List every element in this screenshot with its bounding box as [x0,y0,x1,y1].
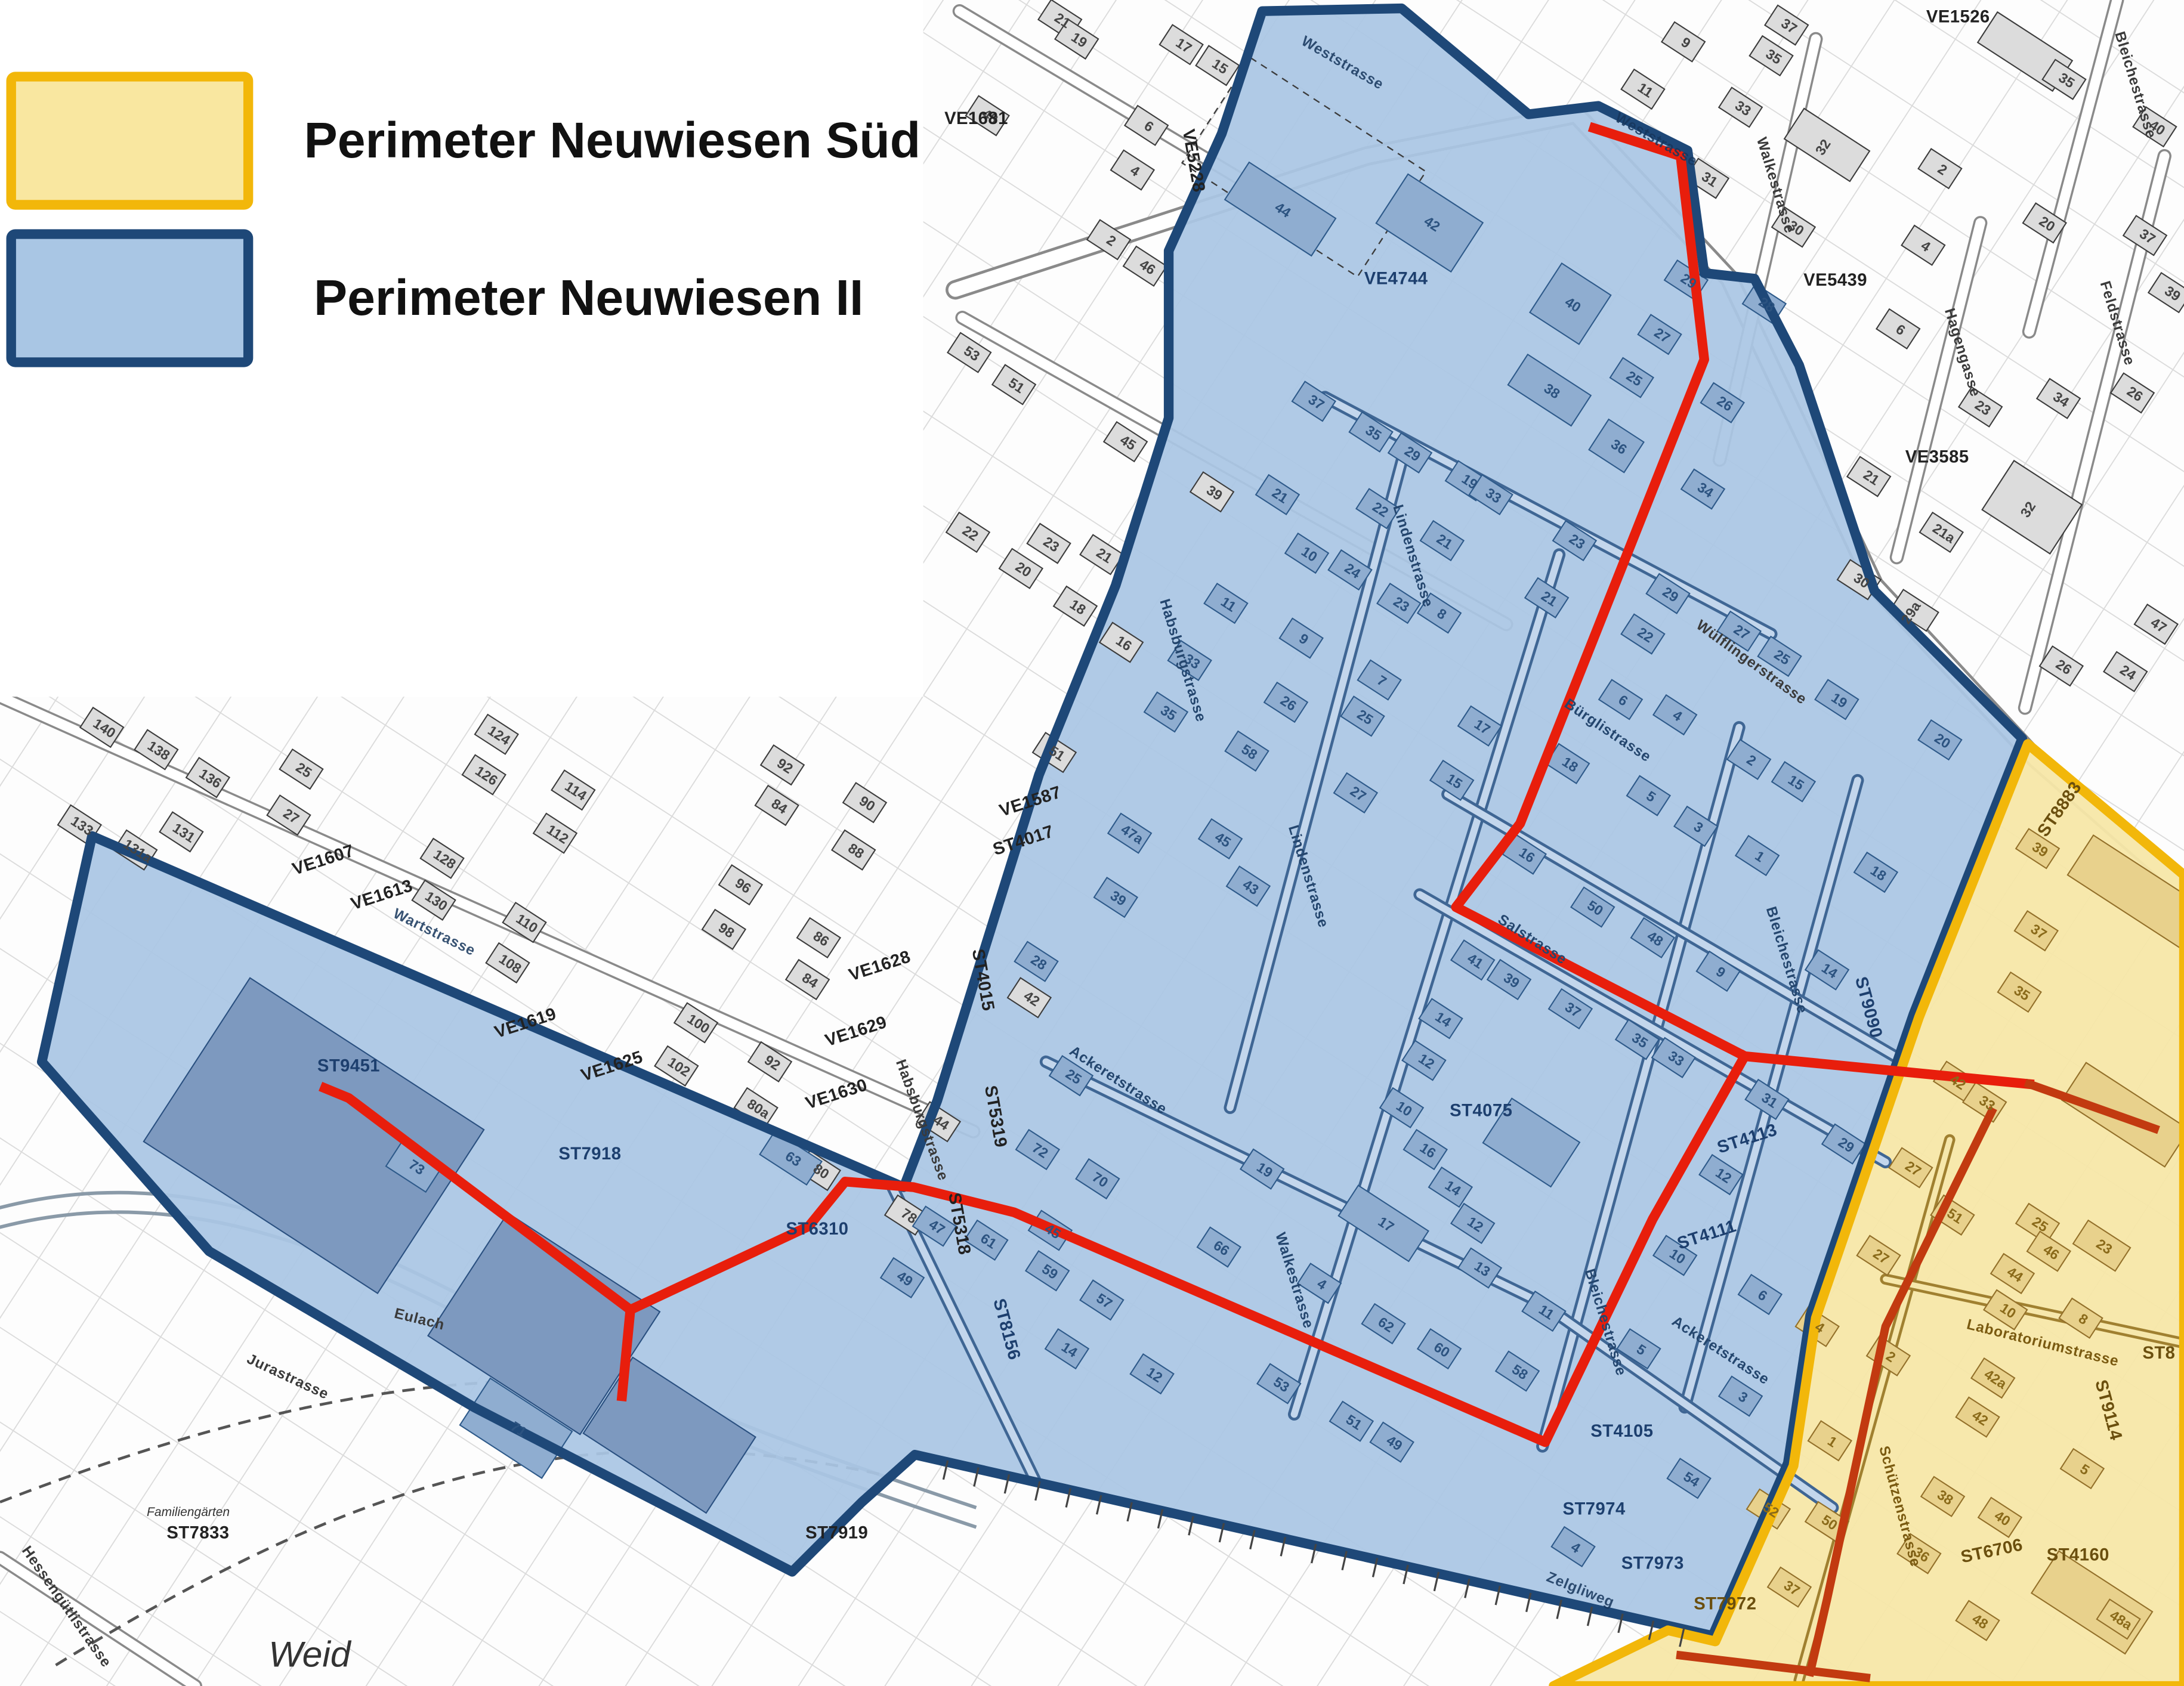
parcel-id-label: ST4075 [1450,1101,1512,1120]
parcel-id-label: ST4105 [1590,1422,1653,1441]
parcel-id-label: VE4744 [1364,270,1428,289]
parcel-id-label: ST7919 [805,1523,868,1542]
area-name-label: Weid [268,1634,352,1674]
parcel-id-label: ST7918 [558,1144,621,1164]
parcel-id-label: VE5439 [1803,271,1867,290]
legend: Perimeter Neuwiesen Süd Perimeter Neuwie… [0,0,923,697]
legend-label-neuwiesen-ii: Perimeter Neuwiesen II [314,270,863,326]
legend-label-neuwiesen-sued: Perimeter Neuwiesen Süd [304,112,921,168]
area-name-label: Familiengärten [147,1505,230,1519]
parcel-id-label: ST6310 [786,1220,848,1239]
parcel-id-label: VE1526 [1926,7,1990,26]
parcel-id-label: ST7972 [1694,1595,1756,1614]
legend-swatch-neuwiesen-sued [11,77,248,205]
map-screenshot: 2119481715642465351453922201816232191137… [0,0,2184,1686]
parcel-id-label: VE1681 [944,109,1008,128]
parcel-id-label: ST8 [2142,1344,2175,1363]
parcel-id-label: ST7833 [166,1523,229,1542]
cadastral-map: 2119481715642465351453922201816232191137… [0,0,2184,1686]
parcel-id-label: VE3585 [1905,448,1969,467]
legend-swatch-neuwiesen-ii [11,234,248,363]
parcel-id-label: ST7973 [1621,1554,1684,1573]
parcel-id-label: ST4160 [2047,1546,2109,1565]
parcel-id-label: ST9451 [317,1057,380,1076]
parcel-id-label: ST7974 [1563,1500,1626,1519]
